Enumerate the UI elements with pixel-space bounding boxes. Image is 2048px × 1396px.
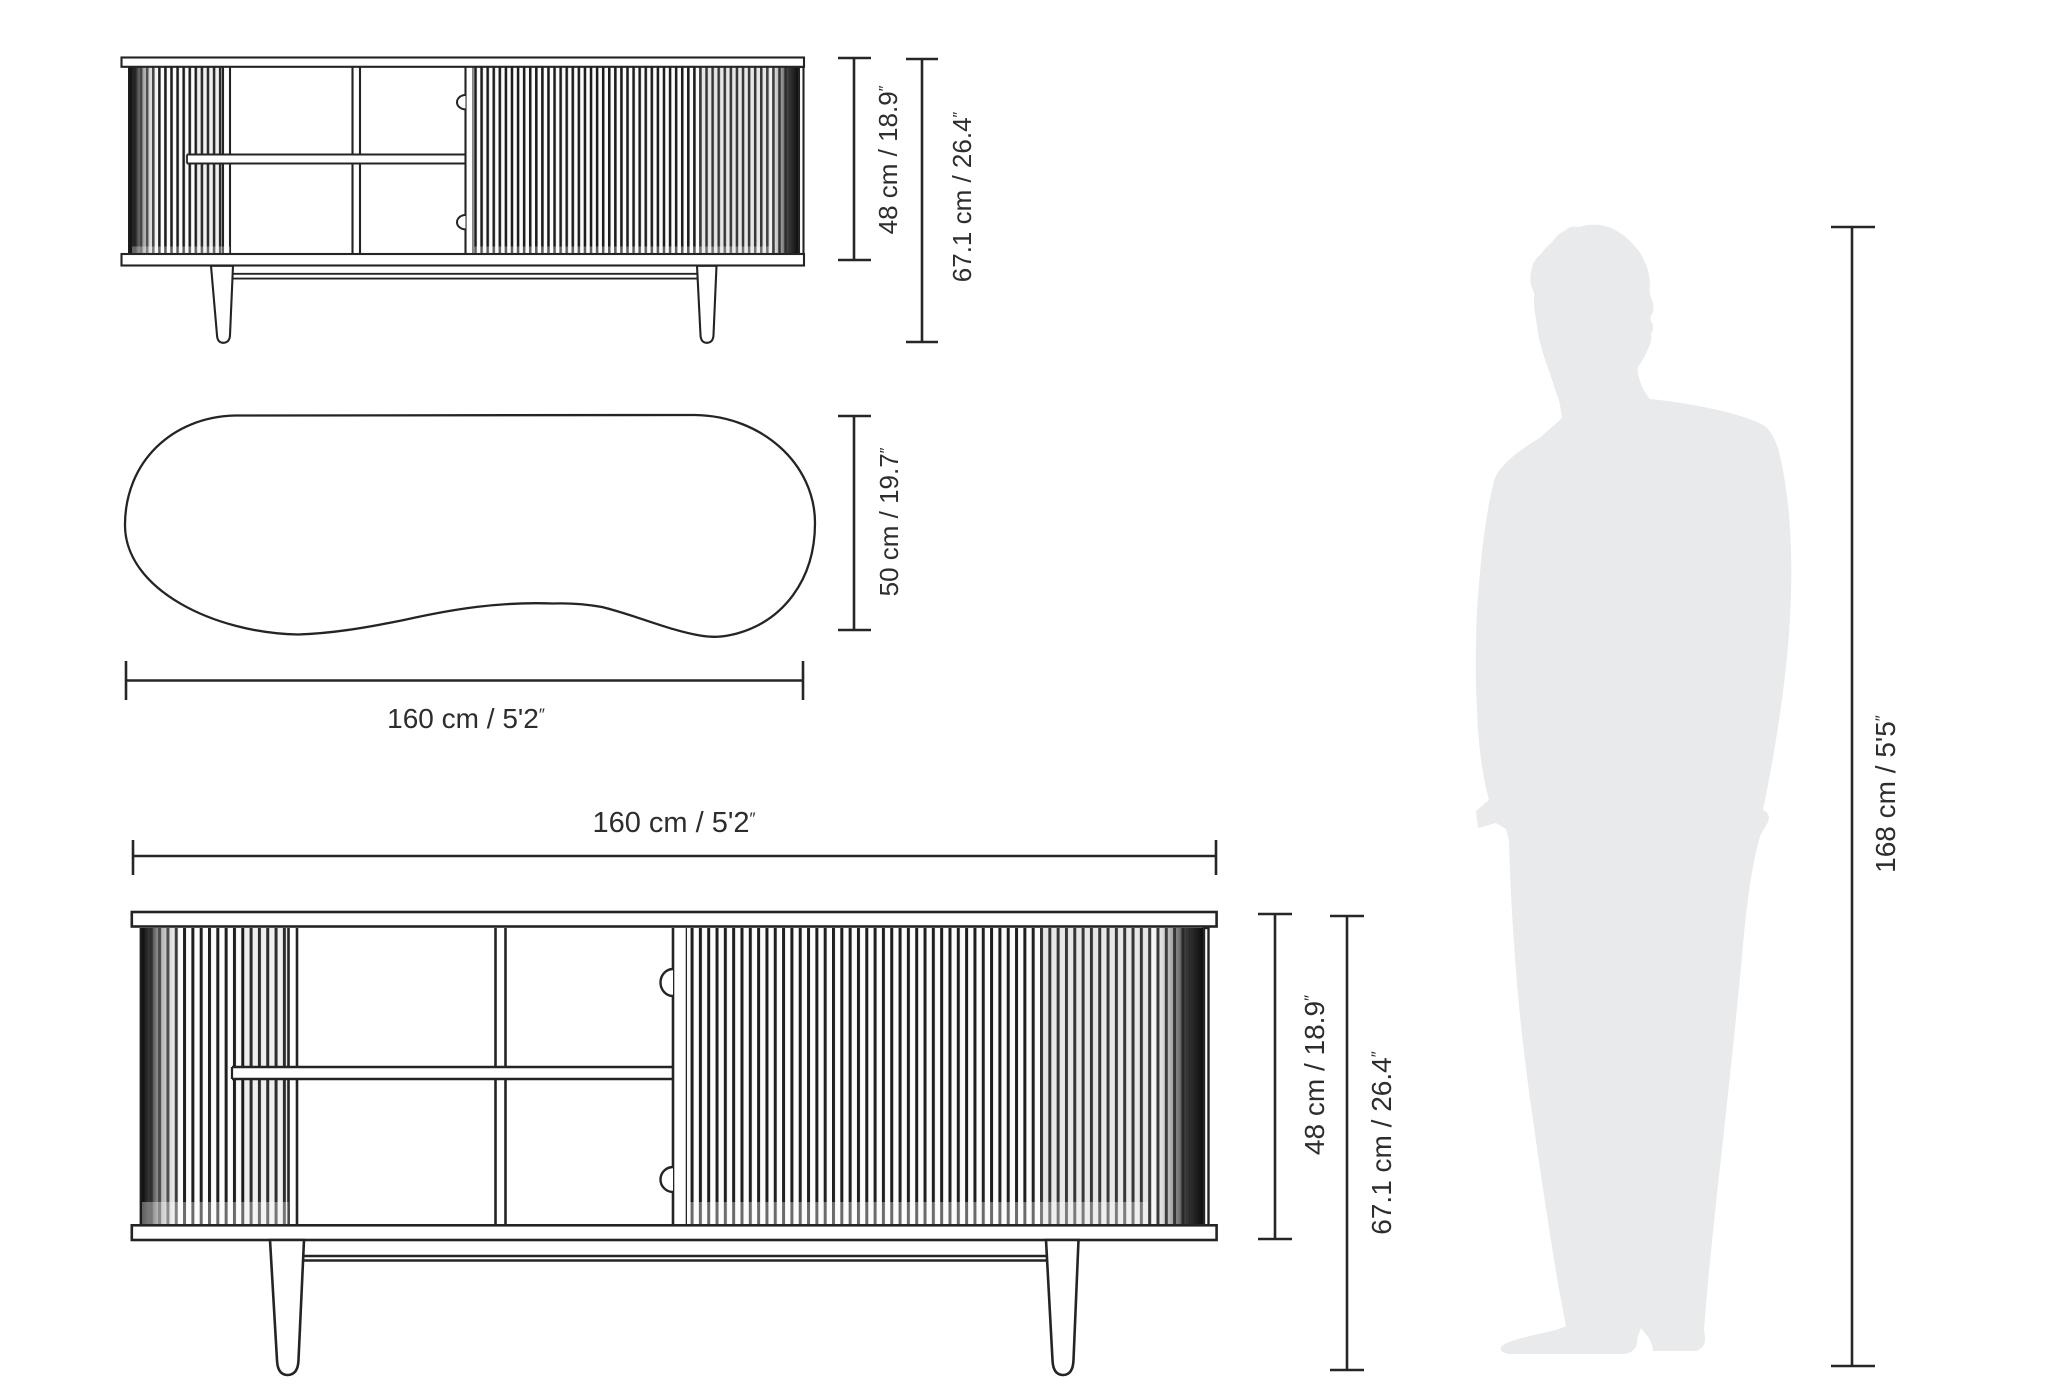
svg-text:168 cm / 5'5″: 168 cm / 5'5″ — [1870, 715, 1901, 873]
svg-text:67.1 cm / 26.4″: 67.1 cm / 26.4″ — [947, 111, 977, 282]
svg-text:67.1 cm / 26.4″: 67.1 cm / 26.4″ — [1366, 1051, 1397, 1234]
svg-text:48 cm / 18.9″: 48 cm / 18.9″ — [1299, 995, 1330, 1155]
svg-text:160 cm / 5'2″: 160 cm / 5'2″ — [387, 703, 545, 734]
svg-text:50 cm / 19.7″: 50 cm / 19.7″ — [874, 447, 904, 596]
svg-text:160 cm / 5'2″: 160 cm / 5'2″ — [592, 807, 755, 839]
svg-text:48 cm / 18.9″: 48 cm / 18.9″ — [873, 85, 903, 234]
